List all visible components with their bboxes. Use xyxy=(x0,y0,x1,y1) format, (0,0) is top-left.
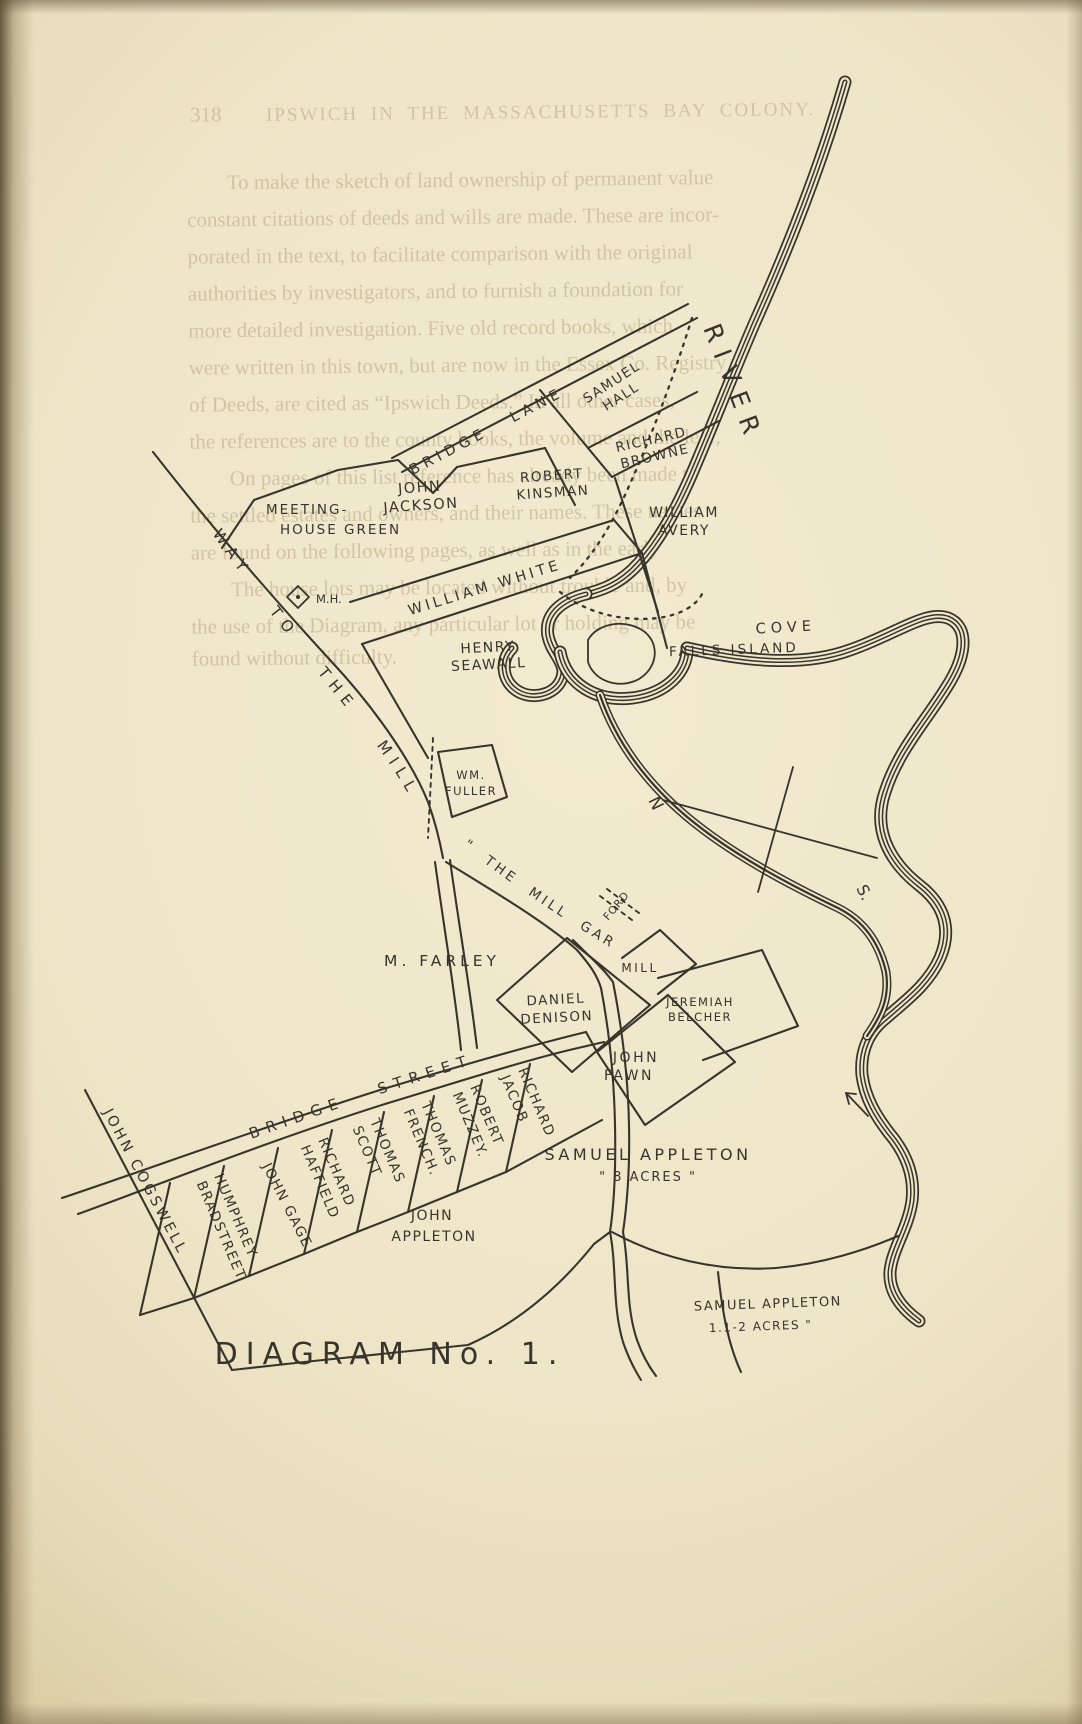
plot-label-robert-kinsman: ROBERT KINSMAN xyxy=(515,465,590,503)
page-gutter-shadow xyxy=(0,0,34,1724)
compass-south-label: S. xyxy=(852,881,876,903)
svg-text:DANIEL: DANIEL xyxy=(526,990,585,1009)
plot-label-daniel-denison: DANIEL DENISON xyxy=(519,990,593,1028)
svg-text:WILLIAM: WILLIAM xyxy=(649,505,719,521)
svg-text:SAMUEL APPLETON: SAMUEL APPLETON xyxy=(694,1294,843,1314)
river-around-falls-island xyxy=(560,648,687,699)
lot-label-thomas-scott: THOMAS SCOTT xyxy=(348,1115,407,1193)
ghost-line: are found on the following pages, as wel… xyxy=(191,536,661,565)
svg-text:JOHN GAGE: JOHN GAGE xyxy=(258,1160,315,1251)
appleton-8acres-south-boundary xyxy=(612,1232,898,1269)
ghost-line: more detailed investigation. Five old re… xyxy=(188,314,673,343)
lot-label-humphrey-bradstreet: HUMPHREY BRADSTREET xyxy=(193,1171,267,1282)
ghost-line: porated in the text, to facilitate compa… xyxy=(187,239,692,268)
meeting-green-label: HOUSE GREEN xyxy=(280,522,401,538)
svg-text:AVERY: AVERY xyxy=(658,523,710,539)
fuller-dashed-boundary xyxy=(428,738,433,838)
svg-text:WM.: WM. xyxy=(456,768,485,782)
ford-label: FORD xyxy=(601,889,632,923)
compass-north-label: N xyxy=(644,793,668,813)
compass: N S. xyxy=(644,767,877,903)
mill-label: MILL xyxy=(621,961,658,975)
diagram-title: DIAGRAM No. 1. xyxy=(215,1337,566,1372)
mill-garden-channel xyxy=(600,695,887,1036)
svg-text:FAWN: FAWN xyxy=(604,1068,654,1084)
map-svg: 318 IPSWICH IN THE MASSACHUSETTS BAY COL… xyxy=(0,0,1082,1724)
plot-label-samuel-appleton-small: SAMUEL APPLETON 1.1-2 ACRES " xyxy=(694,1294,843,1335)
page-edge-bottom xyxy=(0,1702,1082,1724)
svg-text:JOHN: JOHN xyxy=(612,1050,659,1066)
svg-text:DENISON: DENISON xyxy=(520,1008,594,1028)
ghost-page-number: 318 xyxy=(190,102,222,126)
mill-road xyxy=(573,940,629,1232)
plot-label-wm-fuller: WM. FULLER xyxy=(445,768,497,798)
scanned-book-page: 318 IPSWICH IN THE MASSACHUSETTS BAY COL… xyxy=(0,0,1082,1724)
ghost-line: constant citations of deeds and wills ar… xyxy=(187,202,719,232)
meeting-house-abbr: M.H. xyxy=(316,592,342,606)
page-edge-top xyxy=(0,0,1082,14)
svg-text:APPLETON: APPLETON xyxy=(391,1229,476,1245)
ghost-line: authorities by investigators, and to fur… xyxy=(188,277,683,306)
cove-label: COVE xyxy=(755,618,816,637)
lot-label-thomas-french: THOMAS FRENCH. xyxy=(399,1098,459,1178)
lot-label-richard-haffield: RICHARD HAFFIELD xyxy=(297,1135,360,1221)
svg-text:JOHN: JOHN xyxy=(410,1208,453,1224)
svg-text:1.1-2 ACRES ": 1.1-2 ACRES " xyxy=(709,1317,813,1335)
svg-text:" 8 ACRES ": " 8 ACRES " xyxy=(599,1170,697,1185)
plot-label-jeremiah-belcher: JEREMIAH BELCHER xyxy=(665,995,734,1024)
lot-label-robert-muzzey: ROBERT MUZZEY. xyxy=(449,1082,509,1160)
ghost-running-header: IPSWICH IN THE MASSACHUSETTS BAY COLONY. xyxy=(266,99,815,126)
svg-text:HENRY: HENRY xyxy=(460,639,515,658)
svg-text:SEAWALL: SEAWALL xyxy=(451,655,527,675)
svg-text:JEREMIAH: JEREMIAH xyxy=(665,995,734,1009)
meeting-green-label: MEETING- xyxy=(266,502,348,518)
svg-text:FULLER: FULLER xyxy=(445,784,497,798)
fawn-junction-link xyxy=(586,1032,597,1052)
plot-label-samuel-appleton-8-acres: SAMUEL APPLETON " 8 ACRES " xyxy=(544,1145,751,1185)
lot-label-richard-jacob: RICHARD JACOB xyxy=(496,1064,557,1147)
svg-text:SAMUEL APPLETON: SAMUEL APPLETON xyxy=(544,1145,751,1164)
ghost-line: were written in this town, but are now i… xyxy=(189,350,727,380)
svg-text:BELCHER: BELCHER xyxy=(668,1010,732,1024)
river-lower-course xyxy=(687,616,963,1321)
lot-label-john-gage: JOHN GAGE xyxy=(258,1160,315,1251)
page-edge-right xyxy=(1066,0,1082,1724)
svg-text:JOHN: JOHN xyxy=(396,479,441,498)
mill-road xyxy=(601,988,615,1232)
plot-label-m-farley: M. FARLEY xyxy=(384,952,500,970)
ghost-line: To make the sketch of land ownership of … xyxy=(227,165,714,194)
